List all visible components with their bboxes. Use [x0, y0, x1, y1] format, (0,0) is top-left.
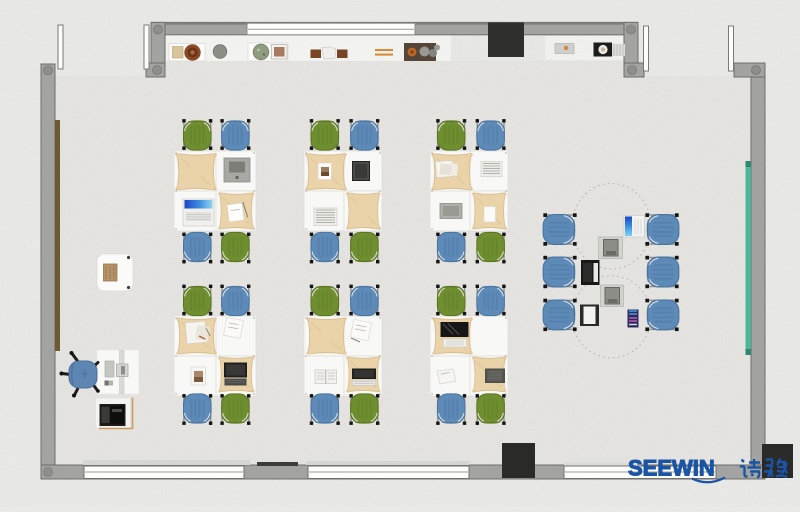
- svg-text:SEEWIN: SEEWIN: [628, 456, 715, 481]
